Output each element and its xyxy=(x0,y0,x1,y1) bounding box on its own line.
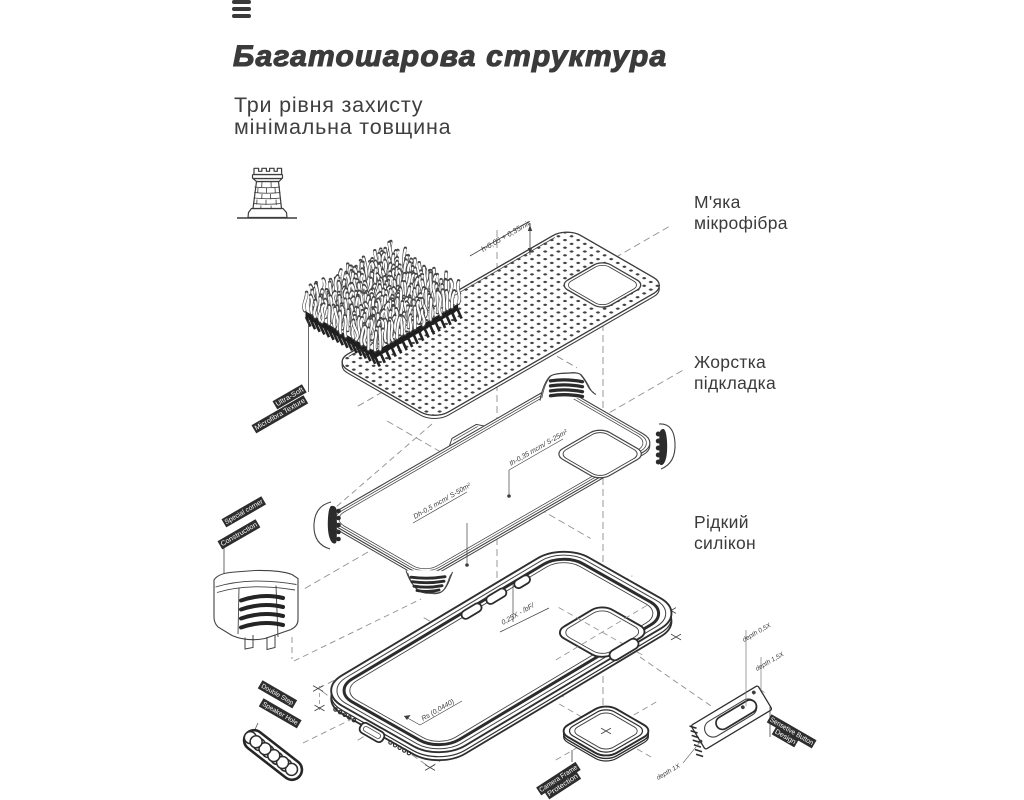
svg-text:depth 1,5X: depth 1,5X xyxy=(755,651,786,673)
svg-text:Special corner: Special corner xyxy=(224,498,265,526)
svg-text:depth 1X: depth 1X xyxy=(656,762,683,781)
svg-text:h-0,05 + 0,35mic: h-0,05 + 0,35mic xyxy=(480,218,533,254)
